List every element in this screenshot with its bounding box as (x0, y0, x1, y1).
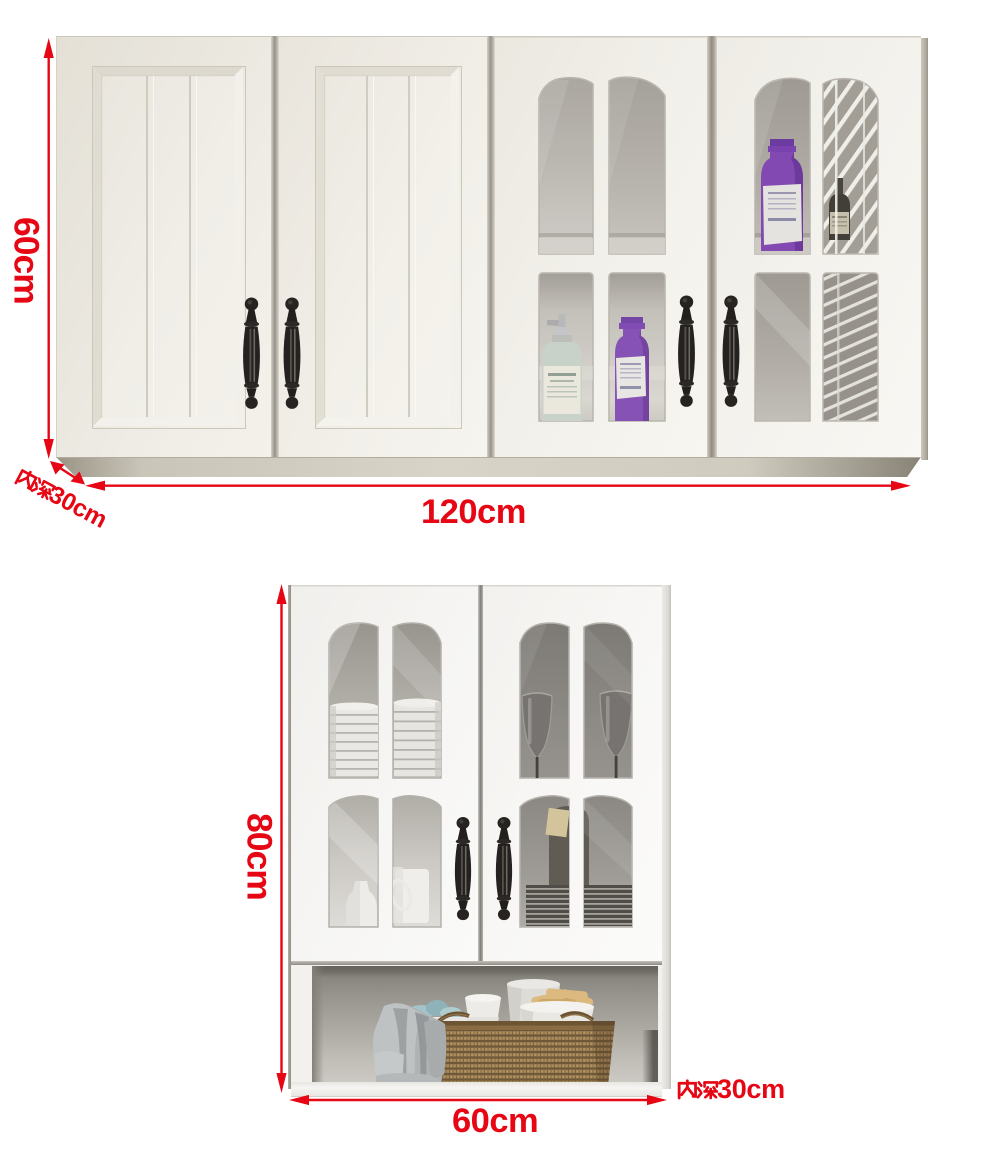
svg-text:80cm: 80cm (240, 813, 280, 900)
svg-text:120cm: 120cm (421, 493, 526, 531)
svg-text:60cm: 60cm (7, 217, 47, 304)
svg-text:30cm: 30cm (717, 1074, 785, 1104)
svg-text:60cm: 60cm (452, 1102, 538, 1140)
